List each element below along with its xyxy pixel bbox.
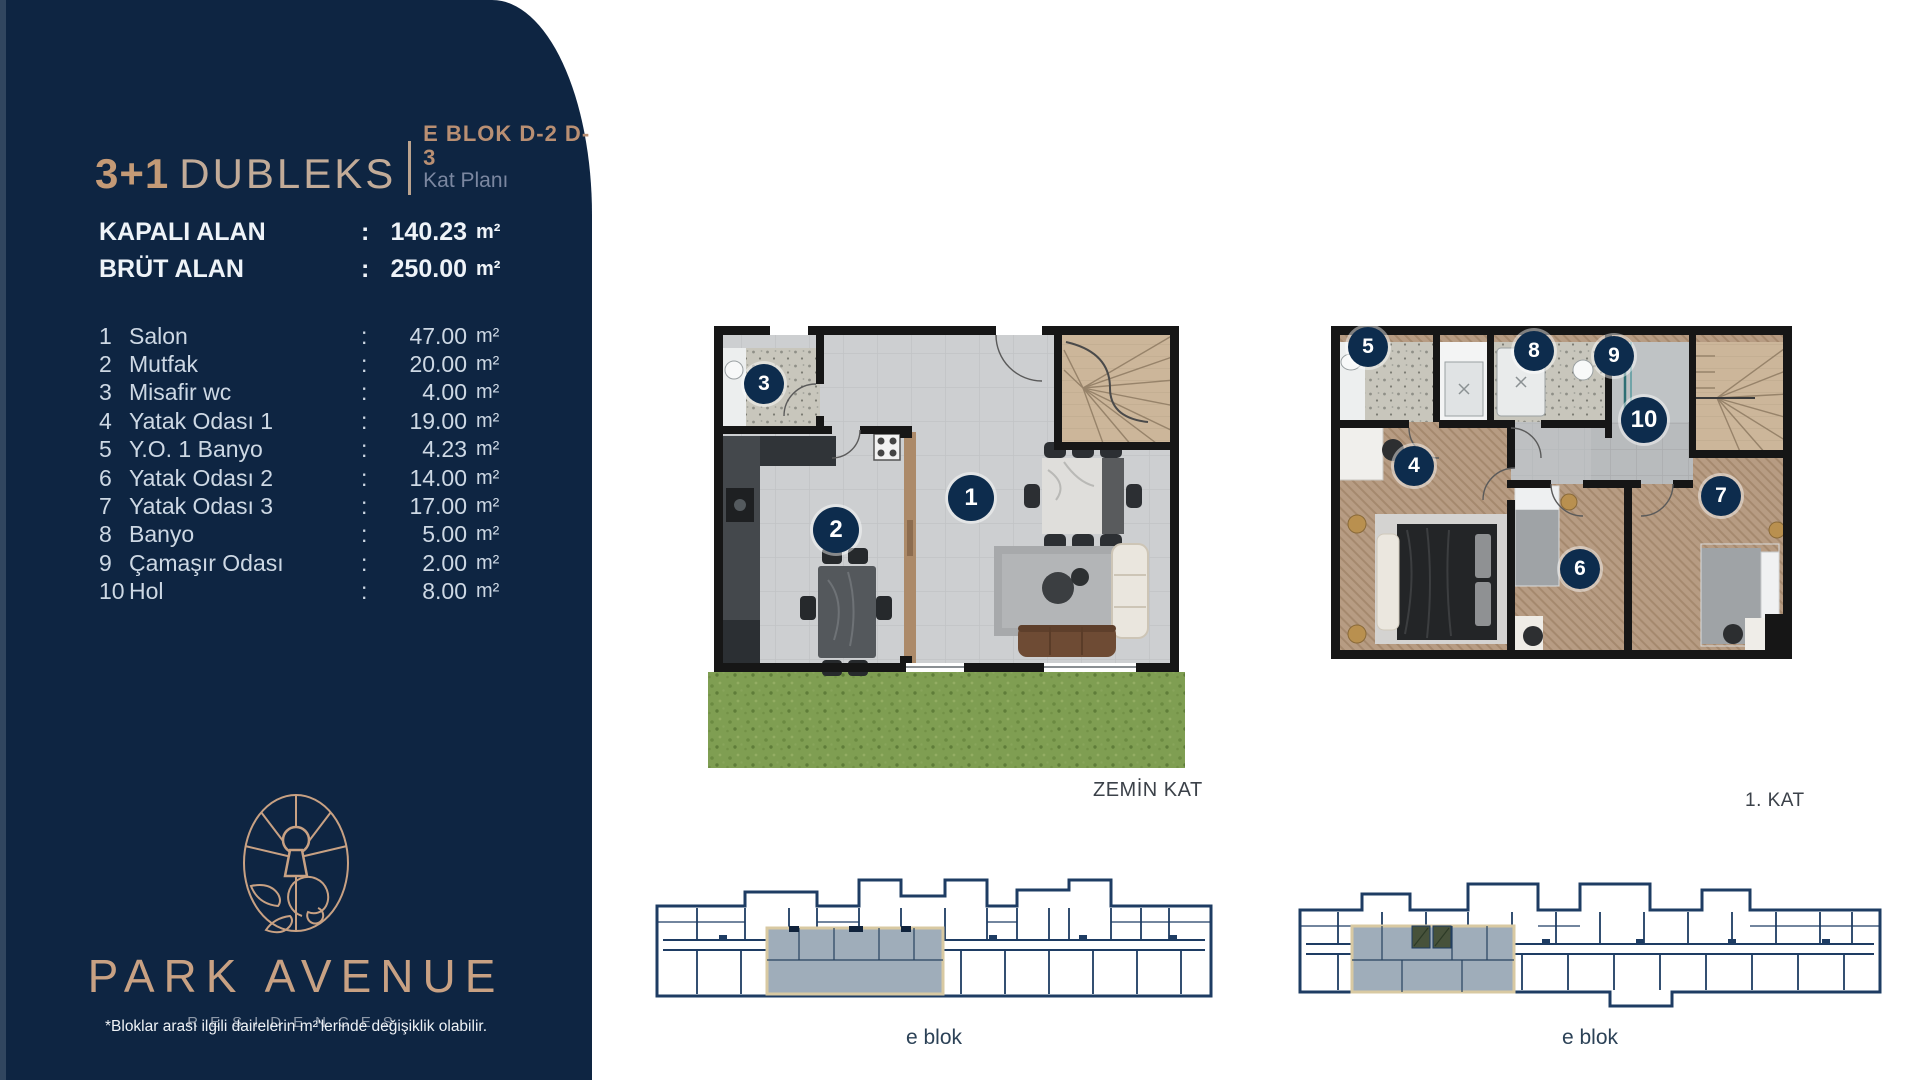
colon: [361, 578, 377, 605]
room-area: 2.00: [377, 550, 467, 577]
room-row: 5Y.O. 1 Banyo4.23m²: [99, 436, 509, 464]
brand-name: PARK AVENUE: [0, 949, 592, 1003]
block-label-ground: e blok: [649, 1026, 1219, 1050]
colon: [361, 323, 377, 350]
colon: [361, 408, 377, 435]
area-value: 140.23: [377, 218, 467, 247]
colon: [361, 465, 377, 492]
area-value: 250.00: [377, 255, 467, 284]
room-name: Yatak Odası 2: [129, 465, 361, 492]
room-row: 2Mutfak20.00m²: [99, 350, 509, 378]
room-no: 10: [99, 578, 129, 605]
area-label: KAPALI ALAN: [99, 218, 361, 247]
colon: [361, 436, 377, 463]
colon: [361, 218, 377, 247]
block-footprint-drawing: [649, 860, 1219, 1012]
room-name: Banyo: [129, 521, 361, 548]
room-list: 1Salon47.00m² 2Mutfak20.00m² 3Misafir wc…: [99, 322, 509, 606]
block-footprint-ground: [649, 860, 1219, 1012]
room-row: 1Salon47.00m²: [99, 322, 509, 350]
first-floor-plan: 4 5 6 7 8 9 10: [1325, 320, 1798, 665]
room-row: 8Banyo5.00m²: [99, 521, 509, 549]
plan-title: 3+1 DUBLEKS E BLOK D-2 D-3 Kat Planı: [95, 122, 592, 195]
colon: [361, 255, 377, 284]
title-subblock: E BLOK D-2 D-3 Kat Planı: [423, 122, 592, 195]
room-row: 9Çamaşır Odası2.00m²: [99, 549, 509, 577]
unit-kind: DUBLEKS: [179, 153, 396, 195]
plan-badge-banyo: 8: [1514, 331, 1554, 371]
room-no: 7: [99, 493, 129, 520]
plan-badge-misafir-wc: 3: [744, 364, 784, 404]
room-row: 7Yatak Odası 317.00m²: [99, 492, 509, 520]
room-area: 5.00: [377, 521, 467, 548]
room-name: Misafir wc: [129, 379, 361, 406]
room-unit: m²: [476, 325, 499, 348]
room-no: 4: [99, 408, 129, 435]
room-name: Çamaşır Odası: [129, 550, 361, 577]
room-row: 4Yatak Odası 119.00m²: [99, 407, 509, 435]
room-no: 9: [99, 550, 129, 577]
area-summary: KAPALI ALAN 140.23 m² BRÜT ALAN 250.00 m…: [99, 214, 509, 288]
area-label: BRÜT ALAN: [99, 255, 361, 284]
area-row: KAPALI ALAN 140.23 m²: [99, 214, 509, 251]
ground-floor-plan: 1 2 3: [708, 320, 1185, 768]
room-name: Hol: [129, 578, 361, 605]
area-unit: m²: [476, 258, 500, 281]
ground-floor-label: ZEMİN KAT: [1093, 779, 1203, 802]
title-divider: [408, 141, 411, 195]
plan-badge-camasir: 9: [1594, 336, 1634, 376]
block-label-first: e blok: [1292, 1026, 1888, 1050]
room-row: 6Yatak Odası 214.00m²: [99, 464, 509, 492]
room-area: 17.00: [377, 493, 467, 520]
plan-badge-yatak-1: 4: [1394, 446, 1434, 486]
plan-badge-yatak-2: 6: [1560, 549, 1600, 589]
room-unit: m²: [476, 467, 499, 490]
room-unit: m²: [476, 410, 499, 433]
keyhole-emblem-icon: [230, 788, 362, 938]
block-footprint-drawing: [1292, 860, 1888, 1012]
colon: [361, 521, 377, 548]
area-row: BRÜT ALAN 250.00 m²: [99, 251, 509, 288]
room-unit: m²: [476, 580, 499, 603]
block-footprint-first: [1292, 860, 1888, 1012]
first-floor-label: 1. KAT: [1745, 790, 1805, 812]
room-unit: m²: [476, 438, 499, 461]
page: 3+1 DUBLEKS E BLOK D-2 D-3 Kat Planı KAP…: [0, 0, 1920, 1080]
room-area: 4.00: [377, 379, 467, 406]
room-area: 8.00: [377, 578, 467, 605]
room-area: 20.00: [377, 351, 467, 378]
colon: [361, 550, 377, 577]
room-no: 3: [99, 379, 129, 406]
room-unit: m²: [476, 552, 499, 575]
room-row: 3Misafir wc4.00m²: [99, 379, 509, 407]
plan-badge-hol: 10: [1621, 397, 1667, 443]
room-no: 8: [99, 521, 129, 548]
sidebar: 3+1 DUBLEKS E BLOK D-2 D-3 Kat Planı KAP…: [0, 0, 592, 1080]
room-name: Y.O. 1 Banyo: [129, 436, 361, 463]
brand-logo: PARK AVENUE RESIDENCES: [0, 788, 592, 1031]
colon: [361, 493, 377, 520]
room-area: 19.00: [377, 408, 467, 435]
plan-caption: Kat Planı: [423, 170, 592, 193]
disclaimer-note: *Bloklar arası ilgili dairelerin m²'leri…: [0, 1018, 592, 1036]
room-unit: m²: [476, 523, 499, 546]
room-unit: m²: [476, 381, 499, 404]
colon: [361, 379, 377, 406]
colon: [361, 351, 377, 378]
highlighted-unit: [767, 928, 943, 994]
room-row: 10Hol8.00m²: [99, 578, 509, 606]
room-area: 14.00: [377, 465, 467, 492]
plan-badge-yo-banyo: 5: [1348, 327, 1388, 367]
room-area: 4.23: [377, 436, 467, 463]
plan-badge-salon: 1: [948, 475, 994, 521]
room-unit: m²: [476, 353, 499, 376]
room-unit: m²: [476, 495, 499, 518]
room-no: 2: [99, 351, 129, 378]
unit-type: 3+1: [95, 153, 169, 195]
room-name: Salon: [129, 323, 361, 350]
room-no: 1: [99, 323, 129, 350]
plan-badge-yatak-3: 7: [1701, 476, 1741, 516]
block-code: E BLOK D-2 D-3: [423, 122, 592, 170]
room-name: Yatak Odası 1: [129, 408, 361, 435]
room-no: 5: [99, 436, 129, 463]
room-no: 6: [99, 465, 129, 492]
plan-badge-mutfak: 2: [813, 507, 859, 553]
room-area: 47.00: [377, 323, 467, 350]
area-unit: m²: [476, 221, 500, 244]
room-name: Mutfak: [129, 351, 361, 378]
room-name: Yatak Odası 3: [129, 493, 361, 520]
